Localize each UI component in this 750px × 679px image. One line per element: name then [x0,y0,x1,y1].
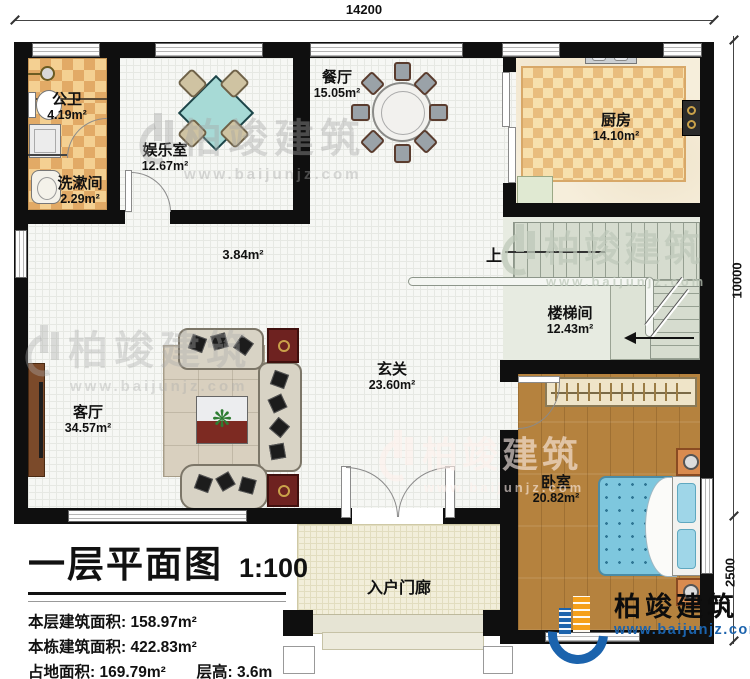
stat-footprint-and-height: 占地面积: 169.79m² 层高: 3.6m [28,660,308,679]
page-title: 一层平面图 [28,534,223,588]
title-underline [28,592,286,602]
plan-scale: 1:100 [239,553,308,584]
dim-tick [729,35,739,45]
room-label-stairwell: 楼梯间12.43m² [520,306,620,336]
stair-railing-horizontal [408,277,654,286]
wardrobe-hangers [555,383,687,401]
stove [682,100,702,136]
kitchen-cabinet [517,176,553,206]
wall-bedroom-left-stub [500,374,518,382]
window [155,43,263,57]
shower-head [40,66,55,81]
room-label-public-bath: 公卫4.19m² [27,92,107,122]
wall-topleft-bottom-b [170,210,310,224]
window [310,43,463,57]
stair-direction-line [634,337,694,339]
dimension-line-top [14,20,714,21]
wall-bath-divider [28,154,67,156]
room-label-entertainment: 娱乐室12.67m² [115,143,215,173]
door-leaf-bedroom [518,376,560,383]
pillow-left [677,483,696,523]
room-label-washroom: 洗漱间2.29m² [30,176,130,206]
dimension-right-upper: 10000 [730,241,745,321]
stair-arrow-head [624,332,636,344]
side-table-top [267,328,299,363]
floor-plan-canvas: 上 ❋ [0,0,750,679]
company-logo-icon [546,592,610,660]
room-label-bedroom: 卧室20.82m² [508,475,604,505]
stat-building-area: 本栋建筑面积: 422.83m² [28,635,308,660]
stairs-up-line [505,251,605,253]
wardrobe [545,377,697,407]
stair-railing-vertical [645,277,654,337]
window [15,230,27,278]
dim-tick [729,511,739,521]
door-sliding-kitchen-1 [502,72,510,127]
room-label-living: 客厅34.57m² [38,405,138,435]
shower-hose [28,73,42,75]
window [663,43,702,57]
room-label-porch: 入户门廊 [329,580,469,598]
dining-chair [394,144,411,163]
company-logo: 柏竣建筑 www.baijunjz.com [546,592,750,660]
stairs-up-label: 上 [486,242,502,266]
dining-table-inner [381,91,425,135]
plant-icon: ❋ [212,405,232,434]
washer-drum [34,129,56,153]
dining-chair [429,104,448,121]
window [502,43,560,57]
window [701,478,713,574]
company-website: www.baijunjz.com [614,622,750,638]
dimension-top: 14200 [14,2,714,17]
wall-left [14,42,28,524]
company-name: 柏竣建筑 [614,592,750,622]
dining-chair [394,62,411,81]
washing-machine [29,124,61,158]
room-label-kitchen: 厨房14.10m² [566,113,666,143]
door-sliding-kitchen-2 [508,127,516,183]
dining-chair [351,104,370,121]
nightstand-lamp [683,454,699,470]
room-label-foyer: 玄关23.60m² [347,362,437,392]
window [32,43,100,57]
burner [687,120,696,129]
title-block: 一层平面图 1:100 本层建筑面积: 158.97m² 本栋建筑面积: 422… [28,534,308,679]
sofa-pillow [269,443,286,460]
corridor-area-note: 3.84m² [203,247,283,262]
porch-floor [297,524,503,616]
burner [687,106,696,115]
porch-pillar-right [483,610,510,636]
porch-step-2 [322,632,484,650]
wall-kitchen-bottom [503,203,714,217]
side-table-bottom [267,474,299,507]
coffee-table: ❋ [196,396,248,444]
stat-floor-area: 本层建筑面积: 158.97m² [28,610,308,635]
wall-topleft-bottom-a [14,210,125,224]
wall-kitchen-left-top [503,58,516,72]
bed-headboard [672,476,702,576]
porch-step-1 [309,614,497,634]
wall-bedroom-top [500,360,714,374]
porch-base-right [483,646,513,674]
room-label-dining: 餐厅15.05m² [297,70,377,100]
window [68,510,247,522]
stairs-lower-flight [650,286,700,360]
pillow-right [677,529,696,569]
